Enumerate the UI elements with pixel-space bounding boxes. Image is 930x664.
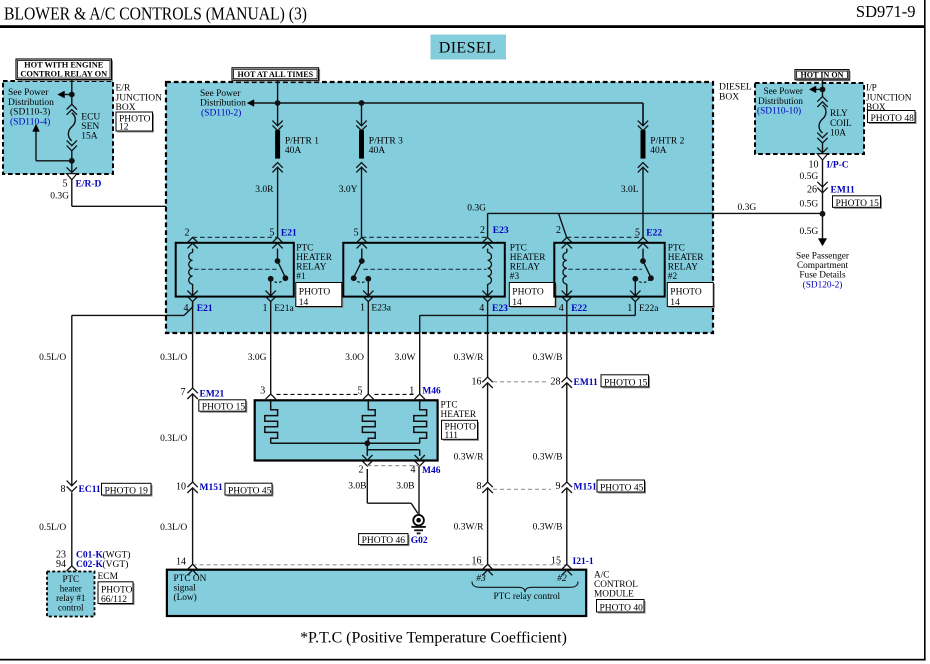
svg-text:3.0R: 3.0R [255,185,274,195]
svg-text:M151: M151 [574,483,597,493]
svg-text:E22: E22 [571,304,587,314]
svg-text:8: 8 [477,481,482,492]
svg-text:CONTROL RELAY ON: CONTROL RELAY ON [20,69,107,78]
svg-text:PHOTO 45: PHOTO 45 [600,484,644,494]
svg-text:RELAY: RELAY [510,263,540,273]
svg-text:E/R: E/R [116,84,131,94]
svg-text:0.3G: 0.3G [467,204,486,214]
svg-text:(SD120-2): (SD120-2) [803,279,843,290]
svg-text:PHOTO 40: PHOTO 40 [600,604,644,614]
svg-text:(SD110-4): (SD110-4) [10,116,50,127]
svg-text:G02: G02 [411,536,428,546]
svg-text:2: 2 [480,225,485,236]
svg-text:28: 28 [551,377,561,388]
svg-text:0.3L/O: 0.3L/O [160,353,187,363]
svg-text:PHOTO 15: PHOTO 15 [202,403,246,413]
svg-text:PTC relay control: PTC relay control [494,592,561,602]
svg-text:Compartment: Compartment [797,261,849,271]
svg-text:Distribution: Distribution [8,98,54,108]
svg-text:relay #1: relay #1 [56,593,85,603]
svg-text:66/112: 66/112 [101,595,127,605]
svg-text:DIESEL: DIESEL [439,40,497,57]
svg-text:PTC: PTC [296,243,313,253]
svg-text:DIESEL: DIESEL [719,83,752,93]
svg-text:I/P-C: I/P-C [827,160,849,170]
svg-text:HOT IN ON: HOT IN ON [800,71,843,80]
svg-text:heater: heater [60,584,82,594]
svg-text:3.0B: 3.0B [348,482,366,492]
svg-text:14: 14 [176,557,186,568]
svg-text:HEATER: HEATER [668,253,704,263]
svg-text:PTC: PTC [441,401,458,411]
svg-text:PHOTO: PHOTO [101,585,133,595]
svg-text:Distribution: Distribution [200,99,246,109]
svg-text:E/R-D: E/R-D [76,180,102,190]
svg-text:0.3W/R: 0.3W/R [454,353,484,363]
svg-text:10A: 10A [830,129,846,139]
svg-text:#3: #3 [476,574,486,584]
svg-text:5: 5 [63,178,68,189]
svg-text:PHOTO: PHOTO [299,287,331,297]
svg-text:1: 1 [409,385,414,396]
svg-text:PHOTO 15: PHOTO 15 [836,199,880,209]
svg-text:E21a: E21a [274,304,294,314]
svg-text:PTC: PTC [668,243,685,253]
svg-text:5: 5 [354,227,359,238]
svg-text:3.0G: 3.0G [248,353,267,363]
svg-text:1: 1 [263,303,268,314]
svg-text:111: 111 [445,431,459,441]
svg-text:16: 16 [472,556,482,567]
svg-text:#1: #1 [296,272,306,282]
svg-text:4: 4 [559,303,564,314]
svg-text:E21: E21 [197,304,213,314]
svg-text:HEATER: HEATER [510,253,546,263]
svg-text:5: 5 [358,385,363,396]
svg-text:PHOTO 15: PHOTO 15 [604,378,648,388]
svg-text:PTC: PTC [510,243,527,253]
svg-text:HEATER: HEATER [441,410,477,420]
svg-text:40A: 40A [285,146,302,156]
svg-text:26: 26 [807,185,817,196]
svg-text:P/HTR 1: P/HTR 1 [285,136,319,146]
svg-text:0.5G: 0.5G [800,172,819,182]
svg-text:PTC: PTC [63,574,80,584]
svg-text:PHOTO 46: PHOTO 46 [362,536,406,546]
svg-text:RLY: RLY [830,109,848,119]
svg-text:0.3L/O: 0.3L/O [160,523,187,533]
svg-text:0.5G: 0.5G [800,227,819,237]
svg-text:10: 10 [809,159,819,170]
svg-text:P/HTR 2: P/HTR 2 [650,136,684,146]
svg-text:4: 4 [479,303,484,314]
svg-text:E23: E23 [493,226,509,236]
svg-text:BOX: BOX [719,92,739,102]
svg-text:9: 9 [556,481,561,492]
svg-text:1: 1 [360,303,365,314]
svg-text:0.3G: 0.3G [50,191,69,201]
svg-text:EM11: EM11 [831,186,856,196]
svg-text:40A: 40A [369,146,386,156]
svg-text:14: 14 [512,298,522,308]
svg-text:3: 3 [260,385,265,396]
svg-text:#3: #3 [510,272,520,282]
svg-text:EC11: EC11 [79,485,101,495]
svg-text:1: 1 [627,303,632,314]
svg-text:COIL: COIL [830,119,852,129]
svg-text:0.3W/R: 0.3W/R [454,453,484,463]
svg-text:10: 10 [176,482,186,493]
svg-text:E23: E23 [492,304,508,314]
svg-text:HOT WITH ENGINE: HOT WITH ENGINE [24,61,104,70]
svg-text:PHOTO: PHOTO [670,287,702,297]
svg-text:signal: signal [174,584,197,594]
svg-text:4: 4 [411,465,416,476]
svg-text:Fuse Details: Fuse Details [799,271,846,281]
svg-text:RELAY: RELAY [296,263,326,273]
svg-text:(Low): (Low) [174,592,197,603]
svg-text:0.5G: 0.5G [800,200,819,210]
svg-text:RELAY: RELAY [668,263,698,273]
svg-text:See Power: See Power [200,89,241,99]
svg-text:0.5L/O: 0.5L/O [39,523,66,533]
svg-text:Distribution: Distribution [758,97,803,107]
svg-text:3.0B: 3.0B [396,482,414,492]
svg-text:(SD110-2): (SD110-2) [201,107,241,118]
svg-text:See Power: See Power [764,87,804,97]
svg-text:E21: E21 [281,228,297,238]
svg-text:PHOTO 48: PHOTO 48 [871,114,915,124]
svg-text:#2: #2 [668,272,678,282]
svg-text:40A: 40A [650,146,667,156]
svg-text:3.0L: 3.0L [621,185,639,195]
svg-text:5: 5 [635,227,640,238]
svg-text:0.3W/R: 0.3W/R [454,523,484,533]
svg-text:M46: M46 [422,387,441,397]
svg-text:MODULE: MODULE [594,590,634,600]
svg-text:E23a: E23a [371,304,391,314]
svg-text:3.0W: 3.0W [395,353,416,363]
svg-text:JUNCTION: JUNCTION [116,93,163,103]
svg-text:(SD110-3): (SD110-3) [10,107,50,118]
svg-text:P/HTR 3: P/HTR 3 [369,136,403,146]
svg-text:0.3W/B: 0.3W/B [533,453,563,463]
svg-text:PHOTO 19: PHOTO 19 [105,487,149,497]
svg-text:15: 15 [551,556,561,567]
svg-text:EM21: EM21 [200,390,225,400]
svg-text:ECU: ECU [81,113,100,123]
svg-text:I21-1: I21-1 [573,557,594,567]
svg-text:14: 14 [299,298,309,308]
svg-text:12: 12 [119,123,129,133]
svg-text:C01-K: C01-K [76,551,104,561]
svg-text:HOT AT ALL TIMES: HOT AT ALL TIMES [237,70,313,79]
svg-text:*P.T.C (Positive Temperature: *P.T.C (Positive Temperature Coefficient… [300,630,567,647]
svg-text:2: 2 [359,465,364,476]
svg-text:94: 94 [56,559,66,570]
svg-text:0.3W/B: 0.3W/B [533,523,563,533]
svg-text:0.3L/O: 0.3L/O [160,434,187,444]
svg-text:PHOTO: PHOTO [512,287,544,297]
svg-text:3.0O: 3.0O [345,353,364,363]
svg-text:M46: M46 [422,466,441,476]
svg-text:PTC ON: PTC ON [174,574,207,584]
svg-text:7: 7 [181,387,186,398]
svg-text:(WGT): (WGT) [103,550,131,561]
svg-text:HEATER: HEATER [296,253,332,263]
svg-text:CONTROL: CONTROL [594,580,638,590]
svg-text:15A: 15A [81,132,98,142]
svg-text:A/C: A/C [594,570,610,580]
svg-text:See Power: See Power [8,88,49,98]
svg-text:See Passenger: See Passenger [796,252,850,262]
svg-text:PHOTO 45: PHOTO 45 [228,487,272,497]
svg-text:8: 8 [61,484,66,495]
svg-text:M151: M151 [200,483,223,493]
svg-text:E22a: E22a [639,304,659,314]
svg-text:control: control [58,603,84,613]
svg-text:0.3W/B: 0.3W/B [533,353,563,363]
svg-text:14: 14 [670,298,680,308]
svg-text:3.0Y: 3.0Y [339,185,358,195]
svg-text:(SD110-10): (SD110-10) [757,105,801,116]
svg-text:(VGT): (VGT) [103,559,129,570]
svg-text:5: 5 [270,227,275,238]
svg-text:I/P: I/P [866,84,877,94]
svg-text:#2: #2 [557,574,567,584]
svg-text:BLOWER & A/C CONTROLS (MANUAL): BLOWER & A/C CONTROLS (MANUAL) (3) [4,4,307,25]
svg-text:16: 16 [472,377,482,388]
svg-text:ECM: ECM [98,572,119,582]
svg-text:0.3G: 0.3G [738,203,757,213]
svg-text:JUNCTION: JUNCTION [866,93,912,103]
svg-text:SD971-9: SD971-9 [856,2,916,21]
svg-text:EM11: EM11 [574,378,599,388]
svg-text:SEN: SEN [81,122,99,132]
svg-text:0.5L/O: 0.5L/O [39,353,66,363]
svg-text:2: 2 [556,225,561,236]
svg-text:E22: E22 [646,228,662,238]
svg-text:C02-K: C02-K [76,560,104,570]
svg-text:2: 2 [185,227,190,238]
